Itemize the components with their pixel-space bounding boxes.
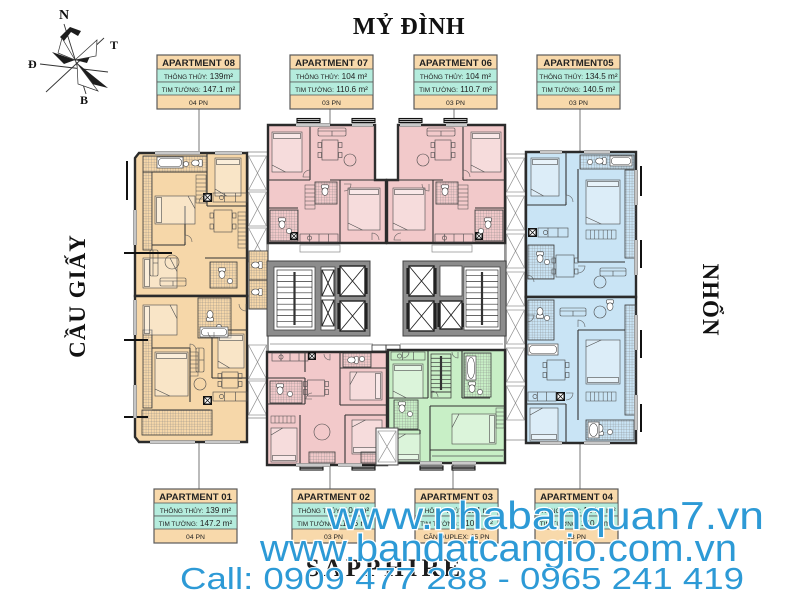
svg-text:TIM TƯỜNG: 147.1 m²: TIM TƯỜNG: 147.1 m² (162, 85, 236, 94)
svg-text:THÔNG THỦY: 104 m²: THÔNG THỦY: 104 m² (296, 72, 368, 81)
svg-text:TIM TƯỜNG: 110.7 m²: TIM TƯỜNG: 110.7 m² (419, 85, 492, 94)
svg-text:THÔNG THỦY: 139 m²: THÔNG THỦY: 139 m² (160, 506, 232, 515)
svg-text:04 PN: 04 PN (189, 100, 208, 107)
svg-text:03 PN: 03 PN (322, 100, 341, 107)
svg-text:APARTMENT 08: APARTMENT 08 (162, 58, 236, 69)
svg-text:THÔNG THỦY: 134.5 m²: THÔNG THỦY: 134.5 m² (539, 72, 617, 81)
svg-text:APARTMENT 06: APARTMENT 06 (419, 58, 492, 69)
svg-text:03 PN: 03 PN (569, 100, 588, 107)
svg-text:APARTMENT 01: APARTMENT 01 (159, 492, 233, 503)
svg-text:MỶ ĐÌNH: MỶ ĐÌNH (353, 14, 465, 40)
svg-text:NHỔN: NHỔN (698, 264, 724, 337)
svg-text:03 PN: 03 PN (446, 100, 465, 107)
svg-text:THÔNG THỦY: 139m²: THÔNG THỦY: 139m² (164, 72, 233, 81)
svg-text:THÔNG THỦY: 104 m²: THÔNG THỦY: 104 m² (420, 72, 492, 81)
svg-text:APARTMENT 07: APARTMENT 07 (295, 58, 368, 69)
svg-text:T: T (110, 38, 118, 52)
svg-text:TIM TƯỜNG: 147.2 m²: TIM TƯỜNG: 147.2 m² (159, 519, 233, 528)
svg-text:APARTMENT05: APARTMENT05 (543, 58, 614, 69)
svg-text:TIM TƯỜNG: 140.5 m²: TIM TƯỜNG: 140.5 m² (542, 85, 616, 94)
svg-text:CẦU GIẤY: CẦU GIẤY (64, 234, 90, 358)
svg-text:04 PN: 04 PN (186, 534, 205, 541)
svg-text:Đ: Đ (28, 57, 37, 71)
svg-text:N: N (59, 8, 69, 23)
svg-text:TIM TƯỜNG: 110.6 m²: TIM TƯỜNG: 110.6 m² (295, 85, 368, 94)
svg-text:Call: 0909 477 288 - 0965 241: Call: 0909 477 288 - 0965 241 419 (180, 562, 744, 596)
svg-text:B: B (80, 93, 88, 107)
